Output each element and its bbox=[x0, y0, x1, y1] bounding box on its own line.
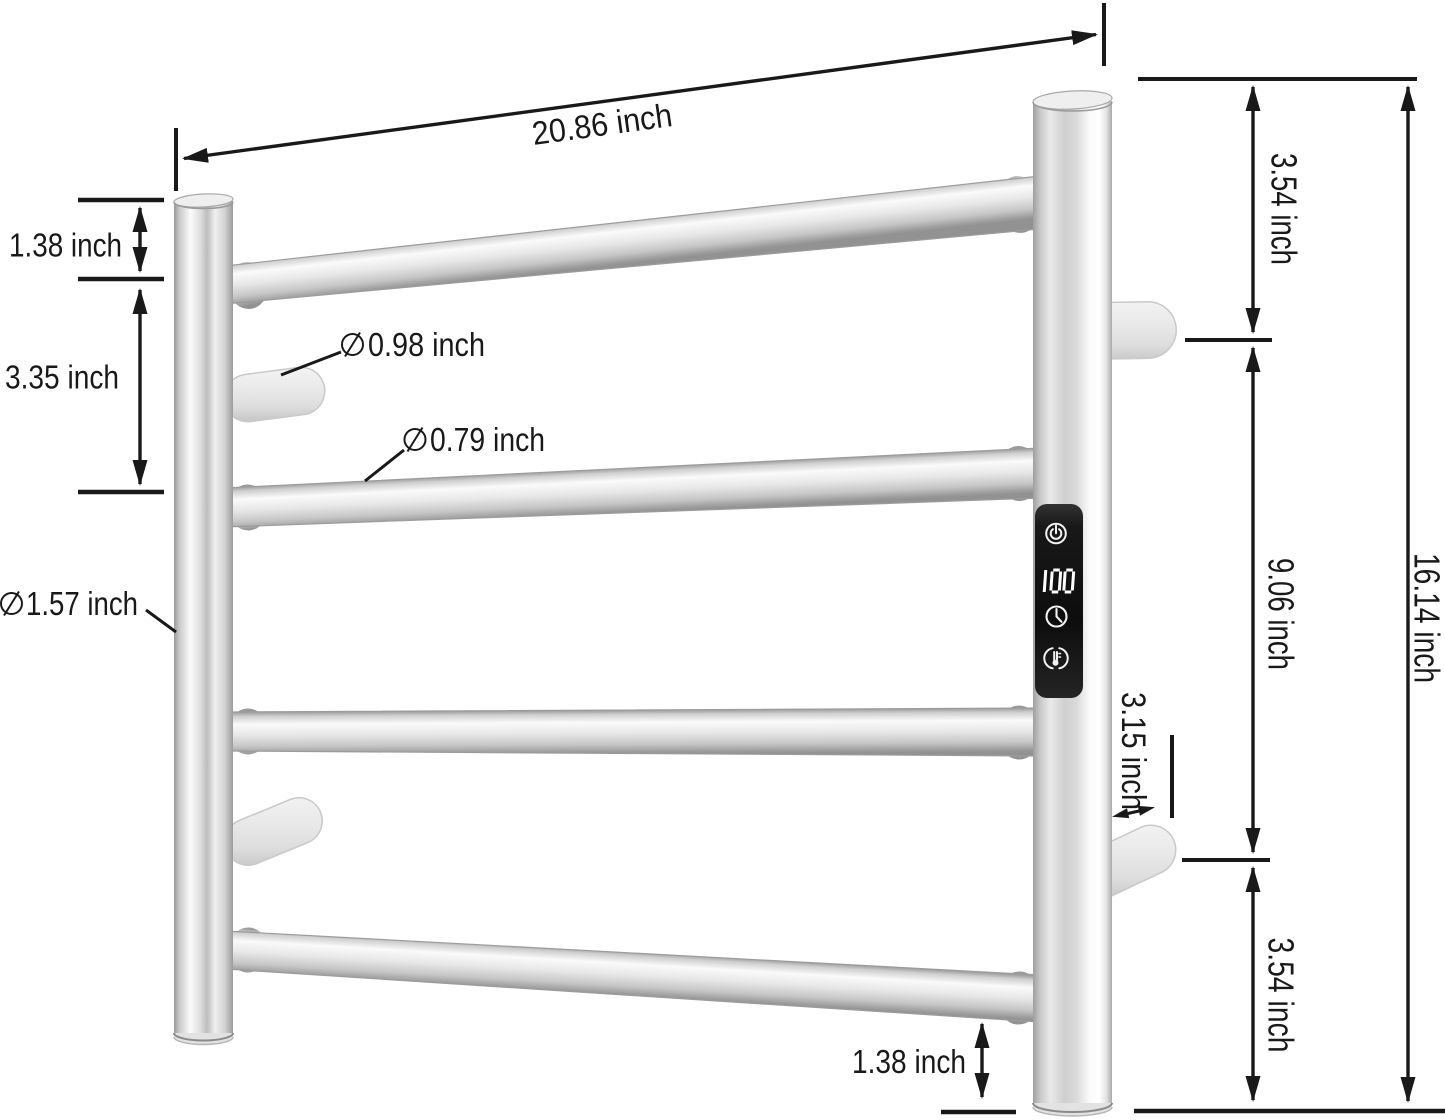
svg-text:1.57 inch: 1.57 inch bbox=[26, 585, 138, 622]
svg-text:3.15 inch: 3.15 inch bbox=[1114, 692, 1152, 810]
svg-text:0.98 inch: 0.98 inch bbox=[368, 326, 485, 363]
svg-text:3.54 inch: 3.54 inch bbox=[1261, 938, 1302, 1053]
svg-text:16.14 inch: 16.14 inch bbox=[1407, 553, 1445, 683]
svg-text:3.35 inch: 3.35 inch bbox=[5, 359, 119, 396]
svg-text:20.86 inch: 20.86 inch bbox=[530, 96, 675, 152]
svg-text:9.06 inch: 9.06 inch bbox=[1261, 558, 1302, 670]
svg-text:3.54 inch: 3.54 inch bbox=[1264, 153, 1305, 265]
svg-text:0.79 inch: 0.79 inch bbox=[430, 421, 545, 458]
svg-text:1.38 inch: 1.38 inch bbox=[852, 1043, 966, 1080]
svg-text:1.38 inch: 1.38 inch bbox=[9, 227, 122, 264]
